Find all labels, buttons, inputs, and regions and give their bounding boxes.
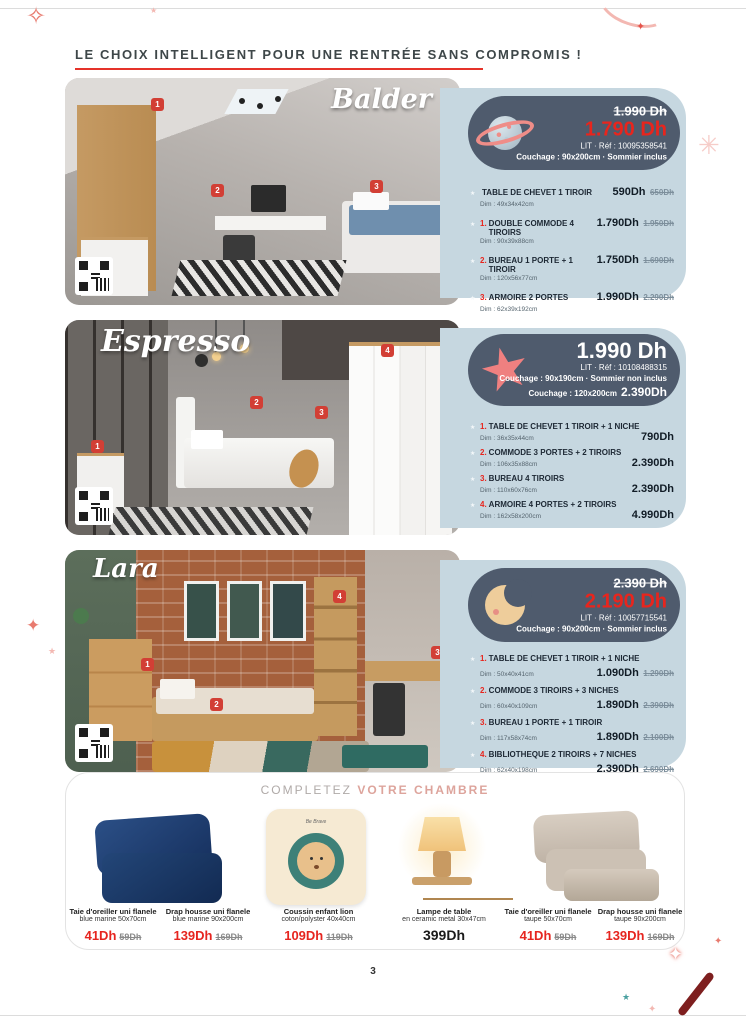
- item-number-badge: 1: [141, 658, 154, 671]
- product-label: Drap housse uni flanele taupe 90x200cm 1…: [594, 907, 686, 945]
- product-desc: en ceramic metal 30x47cm: [388, 916, 500, 925]
- item-name: TABLE DE CHEVET 1 TIROIR + 1 NICHE: [489, 654, 640, 663]
- sparkle-asterisk-icon: ✳: [698, 130, 720, 161]
- item-name: ARMOIRE 4 PORTES + 2 TIROIRS: [489, 500, 617, 509]
- star-icon: ★: [470, 752, 478, 759]
- product-price: 41Dh: [85, 928, 117, 943]
- lion-cushion-photo: Be Brave: [266, 809, 366, 905]
- product-price: 109Dh: [284, 928, 323, 943]
- product-name: Drap housse uni flanele: [594, 907, 686, 916]
- price-pill-balder: 1.990 Dh 1.790 Dh LIT · Réf : 1009535854…: [468, 96, 680, 170]
- star-icon: ★: [470, 190, 478, 197]
- list-item: ★2.COMMODE 3 TIROIRS + 3 NICHES Dim : 60…: [470, 686, 674, 713]
- star-icon: ★: [470, 688, 478, 695]
- bottom-trim-line: [0, 1015, 746, 1016]
- set-title-lara: Lara: [93, 554, 159, 584]
- page-number: 3: [0, 966, 746, 977]
- item-price: 1.790Dh: [597, 217, 639, 229]
- item-dim: Dim : 110x60x76cm: [480, 487, 537, 494]
- qr-code: [75, 257, 113, 295]
- patchwork-rug: [152, 741, 369, 772]
- lion-face: [297, 842, 335, 880]
- product-ref: LIT · Réf : 10057715541: [516, 612, 667, 623]
- desk: [365, 661, 448, 681]
- product-price: 399Dh: [423, 927, 465, 943]
- item-price: 1.890Dh: [597, 699, 639, 711]
- item-num: 1.: [480, 654, 487, 663]
- product-label: Coussin enfant lion coton/polyster 40x40…: [261, 907, 376, 945]
- star-icon: ★: [470, 450, 478, 457]
- sparkle-star-icon: ✧: [26, 2, 46, 31]
- zigzag-rug: [109, 507, 313, 535]
- item-price: 1.890Dh: [597, 731, 639, 743]
- item-price: 1.750Dh: [597, 254, 639, 266]
- product-label: Lampe de table en ceramic metal 30x47cm …: [388, 907, 500, 945]
- item-list-espresso: ★1.TABLE DE CHEVET 1 TIROIR + 1 NICHE Di…: [470, 422, 674, 526]
- product-desc: taupe 90x200cm: [594, 916, 686, 925]
- item-old-price: 2.100Dh: [643, 733, 674, 742]
- list-item: ★4.ARMOIRE 4 PORTES + 2 TIROIRS Dim : 16…: [470, 500, 674, 521]
- product-ref: LIT · Réf : 10108488315: [499, 362, 667, 373]
- item-dim: Dim : 106x35x88cm: [480, 461, 537, 468]
- item-number-badge: 4: [333, 590, 346, 603]
- star-icon: ★: [470, 656, 478, 663]
- item-price: 1.990Dh: [597, 291, 639, 303]
- room-photo-balder: Balder 1 2 3: [65, 78, 460, 305]
- price-pill-lara: 2.390 Dh 2.190 Dh LIT · Réf : 1005771554…: [468, 568, 680, 642]
- item-dim: Dim : 36x35x44cm: [480, 435, 534, 442]
- bed-pillow: [353, 192, 389, 210]
- item-dim: Dim : 90x39x88cm: [480, 238, 674, 245]
- product-desc: blue marine 90x200cm: [158, 916, 258, 925]
- small-star-icon: ✦: [714, 936, 722, 947]
- section-title-prefix: COMPLETEZ: [261, 783, 352, 797]
- small-star-icon: ✦: [648, 1004, 656, 1015]
- poster: [184, 581, 220, 641]
- item-dim: Dim : 120x56x77cm: [480, 275, 674, 282]
- set-title-espresso: Espresso: [101, 324, 250, 359]
- couchage-info: Couchage : 90x200cm · Sommier inclus: [516, 151, 667, 162]
- item-price: 2.390Dh: [632, 457, 674, 469]
- item-dim: Dim : 60x40x109cm: [480, 703, 537, 710]
- old-price: 1.990 Dh: [516, 104, 667, 120]
- item-num: 1.: [480, 422, 487, 431]
- magic-wand: [677, 971, 715, 1017]
- list-item: ★3.ARMOIRE 2 PORTES1.990Dh 2.290Dh Dim :…: [470, 287, 674, 313]
- star-icon: ★: [470, 221, 478, 228]
- item-old-price: 1.690Dh: [643, 256, 674, 265]
- item-num: 2.: [480, 256, 487, 265]
- item-price: 790Dh: [641, 431, 674, 443]
- couchage-info-2: Couchage : 120x200cm2.390Dh: [499, 384, 667, 401]
- price-panel-balder: 1.990 Dh 1.790 Dh LIT · Réf : 1009535854…: [440, 88, 686, 298]
- item-list-balder: ★TABLE DE CHEVET 1 TIROIR590Dh 650Dh Dim…: [470, 182, 674, 318]
- item-name: BIBLIOTHEQUE 2 TIROIRS + 7 NICHES: [489, 750, 637, 759]
- product-price: 139Dh: [605, 928, 644, 943]
- page-title: LE CHOIX INTELLIGENT POUR UNE RENTRÉE SA…: [75, 47, 582, 62]
- item-dim: Dim : 50x40x41cm: [480, 671, 534, 678]
- pink-arc-decoration: [593, 0, 674, 36]
- price-block: 2.390 Dh 2.190 Dh LIT · Réf : 1005771554…: [516, 576, 667, 635]
- lamp-shade: [418, 817, 466, 851]
- product-label: Drap housse uni flanele blue marine 90x2…: [158, 907, 258, 945]
- star-icon: ★: [470, 258, 478, 265]
- cushion-text: Be Brave: [306, 819, 327, 825]
- desk: [215, 216, 326, 230]
- lamp-body: [433, 851, 451, 877]
- price-block: 1.990 Dh LIT · Réf : 10108488315 Couchag…: [499, 339, 667, 401]
- section-title-highlight: VOTRE CHAMBRE: [357, 783, 489, 797]
- poster: [227, 581, 263, 641]
- product-old-price: 59Dh: [119, 932, 141, 942]
- product-old-price: 119Dh: [326, 932, 353, 942]
- price-panel-lara: 2.390 Dh 2.190 Dh LIT · Réf : 1005771554…: [440, 560, 686, 768]
- item-price: 4.990Dh: [632, 509, 674, 521]
- item-num: 3.: [480, 718, 487, 727]
- product-name: Lampe de table: [388, 907, 500, 916]
- room-photo-espresso: Espresso 1 2 3 4: [65, 320, 460, 535]
- price-block: 1.990 Dh 1.790 Dh LIT · Réf : 1009535854…: [516, 104, 667, 163]
- product-old-price: 169Dh: [216, 932, 243, 942]
- item-num: 3.: [480, 474, 487, 483]
- item-old-price: 2.290Dh: [643, 293, 674, 302]
- zigzag-rug: [171, 260, 346, 296]
- item-dim: Dim : 49x34x42cm: [480, 201, 674, 208]
- set-title-balder: Balder: [331, 84, 432, 115]
- item-num: 1.: [480, 219, 487, 228]
- item-dim: Dim : 162x58x200cm: [480, 513, 541, 520]
- section-title: COMPLETEZ VOTRE CHAMBRE: [66, 783, 684, 797]
- list-item: ★3.BUREAU 4 TIROIRS Dim : 110x60x76cm2.3…: [470, 474, 674, 495]
- small-star-icon: ★: [48, 646, 56, 657]
- wardrobe-4-doors: [349, 342, 452, 536]
- item-number-badge: 2: [211, 184, 224, 197]
- product-name: Taie d'oreiller uni flanele: [502, 907, 594, 916]
- product-desc: blue marine 50x70cm: [68, 916, 158, 925]
- item-number-badge: 1: [151, 98, 164, 111]
- plant: [73, 608, 89, 624]
- item-name: COMMODE 3 PORTES + 2 TIROIRS: [489, 448, 622, 457]
- item-name: BUREAU 1 PORTE + 1 TIROIR: [489, 256, 595, 274]
- item-name: BUREAU 1 PORTE + 1 TIROIR: [489, 718, 603, 727]
- couchage-price: 2.390Dh: [621, 385, 667, 399]
- item-old-price: 1.290Dh: [643, 669, 674, 678]
- desk-monitor: [251, 185, 287, 212]
- product-name: Drap housse uni flanele: [158, 907, 258, 916]
- item-num: 2.: [480, 686, 487, 695]
- item-dim: Dim : 117x58x74cm: [480, 735, 537, 742]
- bed-pillow: [191, 430, 223, 449]
- lion-eyes: [310, 857, 313, 860]
- list-item: ★1.DOUBLE COMMODE 4 TIROIRS1.790Dh 1.950…: [470, 213, 674, 245]
- bed-pillow: [160, 679, 196, 699]
- qr-code: [75, 724, 113, 762]
- product-ref: LIT · Réf : 10095358541: [516, 140, 667, 151]
- product-label: Taie d'oreiller uni flanele blue marine …: [68, 907, 158, 945]
- list-item: ★TABLE DE CHEVET 1 TIROIR590Dh 650Dh Dim…: [470, 182, 674, 208]
- wand-star-icon: ✦: [668, 944, 683, 965]
- star-icon: ★: [470, 476, 478, 483]
- small-star-icon: ✦: [636, 20, 645, 33]
- item-number-badge: 4: [381, 344, 394, 357]
- item-name: DOUBLE COMMODE 4 TIROIRS: [489, 219, 595, 237]
- product-desc: taupe 50x70cm: [502, 916, 594, 925]
- taupe-sheet-roll-photo: [564, 869, 659, 901]
- product-name: Taie d'oreiller uni flanele: [68, 907, 158, 916]
- product-old-price: 169Dh: [648, 932, 675, 942]
- product-price: 139Dh: [173, 928, 212, 943]
- list-item: ★2.BUREAU 1 PORTE + 1 TIROIR1.750Dh 1.69…: [470, 250, 674, 282]
- complete-your-room-card: COMPLETEZ VOTRE CHAMBRE Be Brave Taie d'…: [65, 772, 685, 950]
- couchage-info: Couchage : 90x200cm · Sommier inclus: [516, 623, 667, 634]
- price: 1.990 Dh: [499, 339, 667, 362]
- item-dim: Dim : 62x39x192cm: [480, 306, 674, 313]
- product-desc: coton/polyster 40x40cm: [261, 916, 376, 925]
- list-item: ★1.TABLE DE CHEVET 1 TIROIR + 1 NICHE Di…: [470, 654, 674, 681]
- small-star-icon: ★: [622, 992, 630, 1003]
- item-num: 4.: [480, 500, 487, 509]
- item-num: 3.: [480, 293, 487, 302]
- old-price: 2.390 Dh: [516, 576, 667, 592]
- product-old-price: 59Dh: [554, 932, 576, 942]
- item-list-lara: ★1.TABLE DE CHEVET 1 TIROIR + 1 NICHE Di…: [470, 654, 674, 782]
- small-star-icon: ★: [150, 6, 157, 15]
- item-price: 590Dh: [613, 186, 646, 198]
- couchage-info: Couchage : 90x190cm · Sommier non inclus: [499, 373, 667, 384]
- star-icon: ★: [470, 424, 478, 431]
- item-old-price: 2.390Dh: [643, 701, 674, 710]
- lamp-stool: [412, 877, 472, 885]
- item-old-price: 650Dh: [650, 188, 674, 197]
- item-name: TABLE DE CHEVET 1 TIROIR: [482, 188, 592, 197]
- item-price: 2.390Dh: [632, 483, 674, 495]
- header-underline: [75, 68, 483, 70]
- price-pill-espresso: 1.990 Dh LIT · Réf : 10108488315 Couchag…: [468, 334, 680, 406]
- room-photo-lara: Lara 1 2 3 4: [65, 550, 460, 772]
- price-panel-espresso: 1.990 Dh LIT · Réf : 10108488315 Couchag…: [440, 328, 686, 528]
- star-icon: ★: [470, 502, 478, 509]
- item-name: ARMOIRE 2 PORTES: [489, 293, 569, 302]
- item-number-badge: 1: [91, 440, 104, 453]
- star-icon: ★: [470, 295, 478, 302]
- item-number-badge: 3: [370, 180, 383, 193]
- product-label: Taie d'oreiller uni flanele taupe 50x70c…: [502, 907, 594, 945]
- poster: [270, 581, 306, 641]
- item-name: TABLE DE CHEVET 1 TIROIR + 1 NICHE: [489, 422, 640, 431]
- star-icon: ★: [470, 720, 478, 727]
- product-name: Coussin enfant lion: [261, 907, 376, 916]
- teal-bench: [342, 745, 429, 767]
- item-name: BUREAU 4 TIROIRS: [489, 474, 565, 483]
- item-number-badge: 3: [315, 406, 328, 419]
- list-item: ★2.COMMODE 3 PORTES + 2 TIROIRS Dim : 10…: [470, 448, 674, 469]
- product-price: 41Dh: [520, 928, 552, 943]
- item-old-price: 1.950Dh: [643, 219, 674, 228]
- promo-price: 2.190 Dh: [516, 591, 667, 612]
- promo-price: 1.790 Dh: [516, 119, 667, 140]
- small-star-icon: ✦: [26, 616, 40, 636]
- navy-sheet-photo: [102, 853, 222, 903]
- item-num: 4.: [480, 750, 487, 759]
- desk-chair: [373, 683, 405, 736]
- item-num: 2.: [480, 448, 487, 457]
- lion-nose: [314, 865, 319, 869]
- item-number-badge: 2: [250, 396, 263, 409]
- item-price: 1.090Dh: [597, 667, 639, 679]
- couchage-label: Couchage : 120x200cm: [528, 389, 617, 398]
- list-item: ★3.BUREAU 1 PORTE + 1 TIROIR Dim : 117x5…: [470, 718, 674, 745]
- item-number-badge: 2: [210, 698, 223, 711]
- qr-code: [75, 487, 113, 525]
- list-item: ★1.TABLE DE CHEVET 1 TIROIR + 1 NICHE Di…: [470, 422, 674, 443]
- item-name: COMMODE 3 TIROIRS + 3 NICHES: [489, 686, 619, 695]
